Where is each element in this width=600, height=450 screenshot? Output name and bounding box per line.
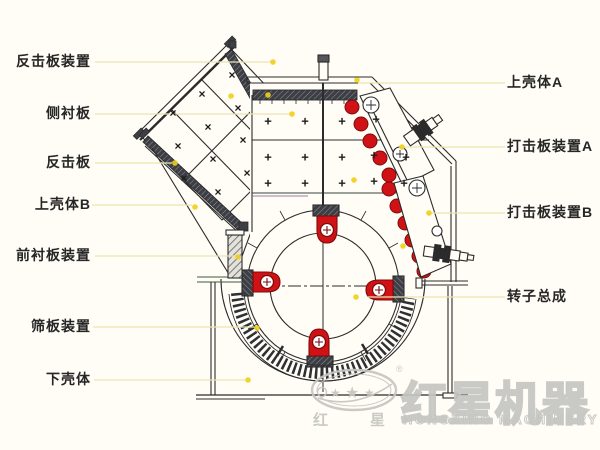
part-label-right-3: 转子总成: [507, 287, 567, 305]
svg-text:+: +: [301, 175, 309, 190]
part-label-left-3: 上壳体B: [35, 195, 91, 213]
svg-text:×: ×: [209, 152, 216, 166]
svg-text:×: ×: [214, 185, 221, 199]
svg-text:+: +: [264, 113, 272, 128]
part-label-left-2: 反击板: [46, 153, 91, 171]
svg-text:×: ×: [169, 106, 176, 120]
crusher-structure-diagram: ++++++++++++++××××××××××× 反击板装置侧衬板反击板上壳体…: [0, 0, 600, 450]
svg-text:×: ×: [243, 166, 250, 180]
part-label-right-1: 打击板装置A: [507, 137, 593, 155]
svg-text:+: +: [372, 111, 380, 126]
svg-text:×: ×: [239, 133, 246, 147]
svg-text:+: +: [338, 113, 346, 128]
top-bolt: [318, 55, 329, 80]
svg-text:+: +: [370, 147, 378, 162]
svg-text:+: +: [338, 149, 346, 164]
part-label-left-4: 前衬板装置: [16, 246, 91, 264]
svg-text:×: ×: [234, 101, 241, 115]
part-label-right-2: 打击板装置B: [507, 203, 593, 221]
svg-text:×: ×: [204, 120, 211, 134]
part-label-right-0: 上壳体A: [507, 73, 563, 91]
svg-text:+: +: [264, 149, 272, 164]
front-liner: [226, 230, 244, 278]
svg-text:+: +: [402, 149, 410, 164]
part-label-left-6: 下壳体: [46, 370, 91, 388]
svg-text:+: +: [370, 173, 378, 188]
svg-text:+: +: [400, 175, 408, 190]
svg-text:×: ×: [180, 171, 187, 185]
part-label-left-5: 筛板装置: [31, 317, 91, 335]
part-label-left-1: 侧衬板: [46, 104, 91, 122]
svg-text:×: ×: [198, 87, 205, 101]
svg-text:+: +: [338, 175, 346, 190]
svg-text:+: +: [264, 175, 272, 190]
svg-text:×: ×: [174, 139, 181, 153]
svg-text:+: +: [301, 113, 309, 128]
svg-text:+: +: [301, 149, 309, 164]
part-label-left-0: 反击板装置: [16, 52, 91, 70]
svg-text:×: ×: [228, 68, 235, 82]
